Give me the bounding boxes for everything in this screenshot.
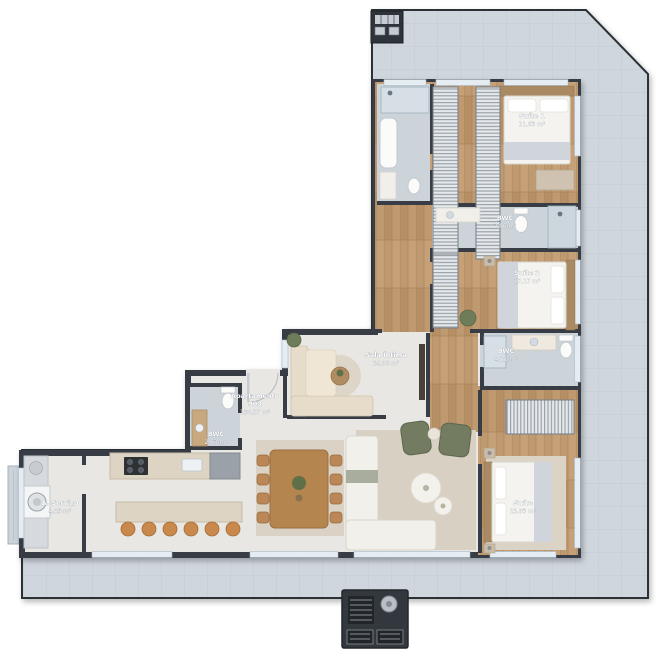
sofa-throw bbox=[346, 470, 378, 483]
sofa-chaise bbox=[291, 396, 373, 416]
toilet bbox=[408, 178, 420, 194]
label-suite3-area: 15,93 m² bbox=[510, 508, 536, 515]
label-suite1-name: Suíte 1 bbox=[519, 112, 545, 120]
shower bbox=[381, 87, 429, 113]
plant bbox=[460, 310, 476, 326]
side-table bbox=[428, 428, 440, 440]
sink bbox=[196, 424, 204, 432]
decor bbox=[296, 495, 303, 502]
room-suite-2 bbox=[433, 254, 575, 330]
lamp bbox=[488, 546, 492, 550]
lamp bbox=[488, 451, 492, 455]
label-suite2-name: Suíte 2 bbox=[514, 269, 540, 277]
apartment: Suíte 1 21,63 m² BWC 2,96 m² Suíte 2 17,… bbox=[19, 80, 581, 558]
floor-wood-hall bbox=[430, 332, 478, 432]
wardrobe bbox=[433, 254, 458, 328]
label-bwc1-area: 2,96 m² bbox=[494, 223, 517, 230]
room-living bbox=[346, 420, 476, 550]
label-suite1-area: 21,63 m² bbox=[519, 121, 545, 128]
tv-console bbox=[419, 344, 425, 400]
centerpiece-plant bbox=[292, 476, 306, 490]
bed-throw bbox=[504, 142, 570, 160]
bed-throw bbox=[534, 462, 552, 542]
decor bbox=[441, 504, 446, 509]
pillow bbox=[551, 297, 564, 324]
toilet bbox=[560, 342, 572, 358]
label-bwc2-area: 4,21 m² bbox=[495, 356, 518, 363]
planter-strip bbox=[8, 466, 19, 544]
armchair bbox=[400, 420, 432, 456]
sofa bbox=[346, 520, 436, 550]
armchair bbox=[438, 422, 472, 457]
vanity bbox=[380, 172, 396, 199]
vent-unit bbox=[347, 630, 373, 644]
washer-drum bbox=[33, 498, 41, 506]
label-bwc2-name: BWC bbox=[498, 347, 515, 355]
kitchen-sink bbox=[182, 459, 202, 471]
laundry-sink bbox=[30, 462, 43, 475]
headboard bbox=[484, 462, 492, 542]
label-unit-area: 158,27 m² bbox=[240, 409, 270, 416]
toilet-tank bbox=[514, 208, 528, 214]
pillow bbox=[508, 99, 536, 112]
label-suite3-name: Suíte bbox=[513, 499, 533, 507]
dining-area bbox=[256, 440, 344, 536]
toilet-tank bbox=[559, 335, 573, 341]
label-unit-title: Apartamento bbox=[231, 392, 280, 400]
dresser bbox=[536, 170, 574, 190]
wardrobe bbox=[476, 87, 500, 259]
label-sala-intima-area: 14,96 m² bbox=[373, 360, 399, 367]
label-unit-number: 903 bbox=[248, 400, 262, 408]
headboard bbox=[566, 260, 575, 330]
label-servico-name: A. Serviço bbox=[42, 499, 79, 507]
floorplan-canvas: Suíte 1 21,63 m² BWC 2,96 m² Suíte 2 17,… bbox=[0, 0, 665, 665]
label-bwc1-name: BWC bbox=[497, 214, 514, 222]
kitchen-island bbox=[116, 502, 242, 522]
wardrobe bbox=[506, 400, 574, 434]
pillow bbox=[540, 99, 568, 112]
utility-shaft-box bbox=[371, 11, 403, 43]
label-servico-area: 4,55 m² bbox=[49, 508, 72, 515]
sink bbox=[530, 338, 538, 346]
sink bbox=[447, 212, 454, 219]
shower-head bbox=[388, 91, 393, 96]
pillow bbox=[495, 503, 506, 535]
label-lavabo-name: BWC bbox=[208, 430, 225, 438]
shower bbox=[548, 206, 576, 248]
headboard bbox=[500, 86, 574, 96]
shower-head bbox=[558, 212, 563, 217]
bathtub bbox=[380, 118, 397, 168]
label-suite2-area: 17,17 m² bbox=[514, 278, 540, 285]
plant bbox=[337, 370, 344, 377]
toilet bbox=[515, 216, 528, 233]
technical-equipment-box bbox=[342, 590, 408, 648]
lamp bbox=[488, 259, 492, 263]
pillow bbox=[495, 467, 506, 499]
pillow bbox=[551, 266, 564, 293]
vent-unit bbox=[377, 630, 403, 644]
plant bbox=[287, 333, 301, 347]
decor bbox=[423, 485, 429, 491]
label-lavabo-area: 2,63 m² bbox=[205, 439, 228, 446]
appliance-column bbox=[210, 453, 240, 479]
vanity bbox=[436, 208, 480, 222]
label-sala-intima-name: Sala Íntima bbox=[365, 350, 407, 359]
cooktop bbox=[124, 457, 148, 475]
wardrobe bbox=[433, 87, 458, 263]
